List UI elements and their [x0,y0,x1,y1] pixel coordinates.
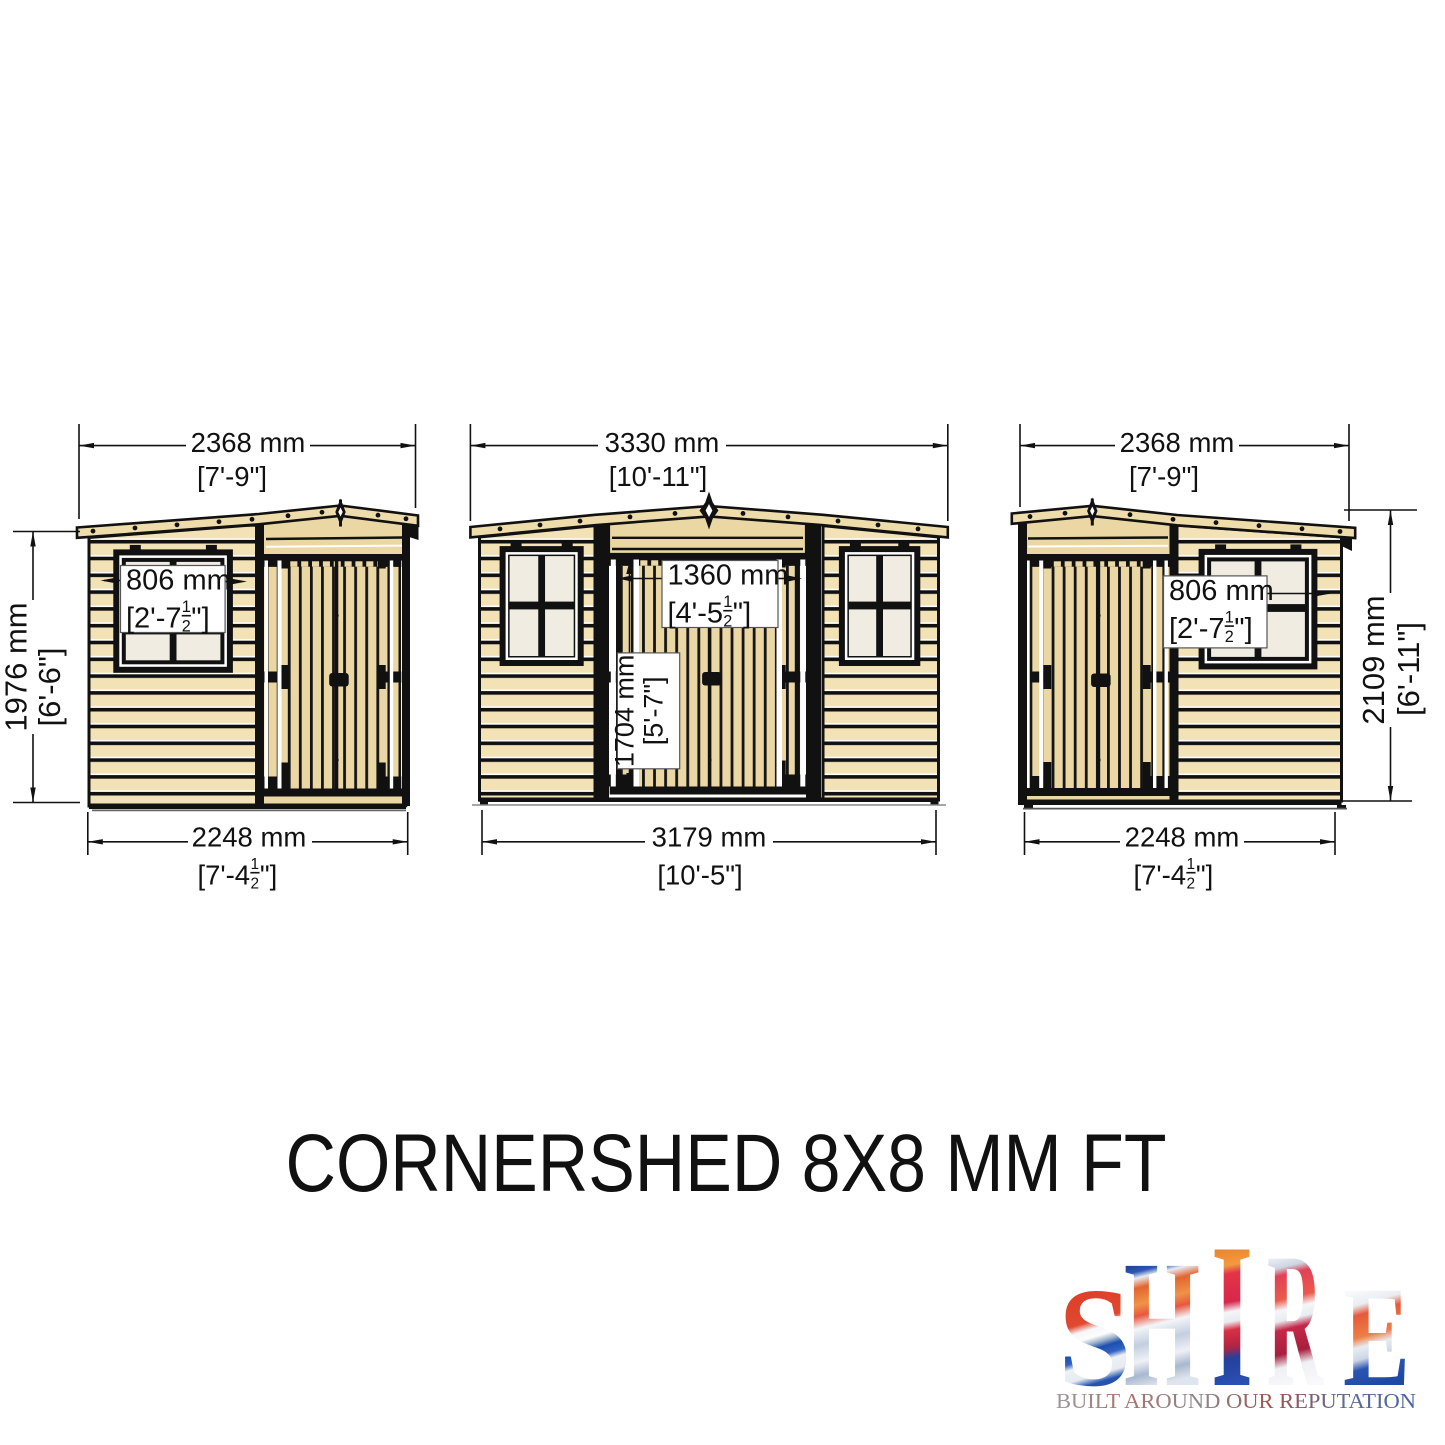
svg-text:CORNERSHED 8X8 MM FT: CORNERSHED 8X8 MM FT [286,1118,1167,1209]
svg-text:1: 1 [182,598,191,616]
svg-text:1704 mm: 1704 mm [609,655,639,768]
svg-text:2: 2 [723,613,732,631]
svg-text:2: 2 [251,876,260,893]
svg-text:3179 mm: 3179 mm [652,822,767,853]
svg-text:2: 2 [182,618,191,636]
svg-text:1360 mm: 1360 mm [668,560,789,592]
svg-text:[6'-6"]: [6'-6"] [32,648,67,727]
svg-text:"]: "] [260,860,277,891]
svg-text:BUILT AROUND OUR REPUTATION: BUILT AROUND OUR REPUTATION [1056,1389,1416,1413]
svg-text:2248 mm: 2248 mm [1125,822,1240,853]
svg-text:[7'-4: [7'-4 [1133,860,1186,891]
svg-text:3330 mm: 3330 mm [605,427,720,458]
svg-text:806 mm: 806 mm [1169,575,1274,607]
svg-text:1: 1 [723,593,732,611]
svg-text:[7'-9"]: [7'-9"] [1129,461,1199,492]
svg-text:[6'-11"]: [6'-11"] [1391,622,1426,716]
svg-text:806 mm: 806 mm [126,565,231,597]
svg-text:1: 1 [1187,856,1196,873]
svg-text:1976 mm: 1976 mm [0,602,34,731]
svg-text:[10'-11"]: [10'-11"] [609,461,708,492]
svg-text:1: 1 [1225,609,1234,627]
svg-text:2368 mm: 2368 mm [1120,427,1235,458]
svg-text:2248 mm: 2248 mm [192,822,307,853]
svg-text:2109 mm: 2109 mm [1356,595,1391,724]
svg-text:[7'-4: [7'-4 [197,860,250,891]
svg-text:[2'-7: [2'-7 [1169,613,1225,645]
svg-text:[4'-5: [4'-5 [668,598,724,630]
svg-text:[7'-9"]: [7'-9"] [197,461,267,492]
svg-text:"]: "] [733,598,751,630]
svg-text:[10'-5"]: [10'-5"] [657,860,742,891]
svg-text:"]: "] [191,603,209,635]
svg-text:"]: "] [1234,613,1252,645]
svg-text:[5'-7"]: [5'-7"] [638,676,668,745]
svg-text:[2'-7: [2'-7 [126,603,182,635]
svg-text:2368 mm: 2368 mm [191,427,306,458]
svg-text:"]: "] [1196,860,1213,891]
svg-text:1: 1 [251,856,260,873]
svg-text:2: 2 [1225,628,1234,646]
svg-text:2: 2 [1187,876,1196,893]
